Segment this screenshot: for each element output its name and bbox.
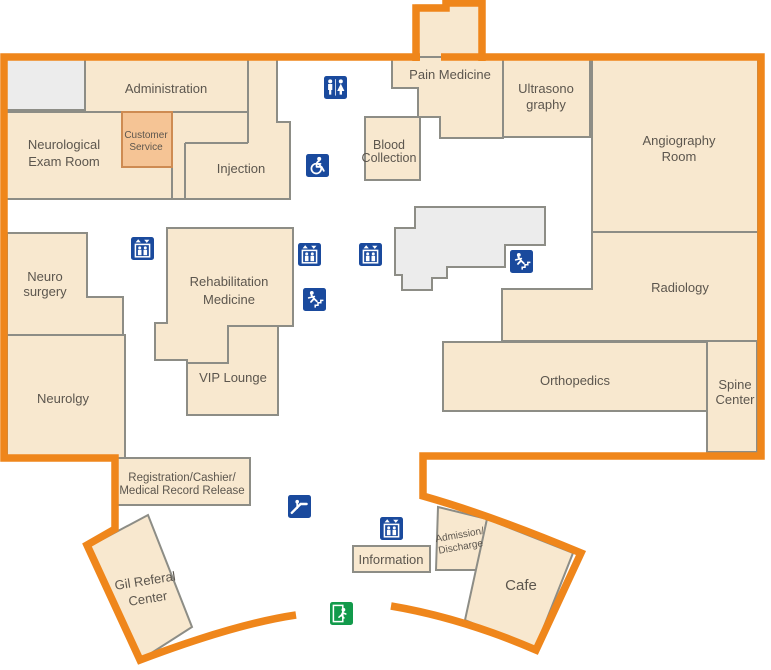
label-ultrasonography-1: Ultrasono (518, 81, 574, 96)
elevator-icon-west (131, 237, 154, 260)
label-neurological-exam-2: Exam Room (28, 154, 100, 169)
label-orthopedics: Orthopedics (540, 373, 611, 388)
escalator-icon (288, 495, 311, 518)
label-rehabilitation-1: Rehabilitation (190, 274, 269, 289)
label-neurological-exam-1: Neurological (28, 137, 100, 152)
label-neuro-surgery-2: surgery (23, 284, 67, 299)
label-customer-service-2: Service (129, 142, 163, 153)
label-vip-lounge: VIP Lounge (199, 370, 267, 385)
room-radiology (502, 232, 758, 341)
room-unlabeled-gray (6, 58, 85, 110)
label-blood-collection-2: Collection (362, 151, 417, 165)
restroom-icon (324, 76, 347, 99)
label-angiography-2: Room (662, 149, 697, 164)
elevator-icon-lobby (380, 517, 403, 540)
label-injection: Injection (217, 161, 265, 176)
hospital-floor-map: Administration Neurological Exam Room Cu… (0, 0, 771, 670)
emergency-stairs-icon-core (510, 250, 533, 273)
label-customer-service-1: Customer (124, 130, 168, 141)
floor-map-canvas: Administration Neurological Exam Room Cu… (0, 0, 771, 670)
label-radiology: Radiology (651, 280, 709, 295)
room-entrance-vestibule (415, 4, 481, 60)
label-blood-collection-1: Blood (373, 138, 405, 152)
elevator-icon-center-left (298, 243, 321, 266)
label-pain-medicine: Pain Medicine (409, 67, 491, 82)
label-registration-2: Medical Record Release (119, 485, 244, 497)
service-core-stairwell (395, 207, 545, 290)
label-ultrasonography-2: graphy (526, 97, 566, 112)
elevator-icon-center-right (359, 243, 382, 266)
emergency-exit-icon (330, 602, 353, 625)
label-neuro-surgery-1: Neuro (27, 269, 62, 284)
label-administration: Administration (125, 81, 207, 96)
label-angiography-1: Angiography (643, 133, 716, 148)
label-cafe: Cafe (505, 577, 537, 594)
label-registration-1: Registration/Cashier/ (128, 472, 236, 484)
label-information: Information (358, 552, 423, 567)
label-spine-center-2: Center (715, 392, 755, 407)
label-neurology: Neurolgy (37, 391, 90, 406)
wheelchair-accessible-icon (306, 154, 329, 177)
label-spine-center-1: Spine (718, 377, 751, 392)
emergency-stairs-icon-west (303, 288, 326, 311)
label-rehabilitation-2: Medicine (203, 292, 255, 307)
